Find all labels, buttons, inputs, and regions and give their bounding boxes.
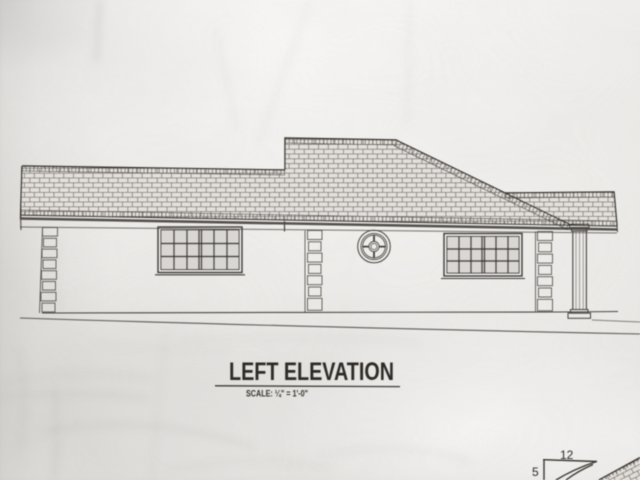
- svg-text:LEFT ELEVATION: LEFT ELEVATION: [229, 358, 394, 386]
- svg-text:12: 12: [560, 448, 574, 462]
- svg-text:SCALE: ¼" = 1'-0": SCALE: ¼" = 1'-0": [246, 389, 308, 399]
- svg-text:5: 5: [532, 465, 539, 479]
